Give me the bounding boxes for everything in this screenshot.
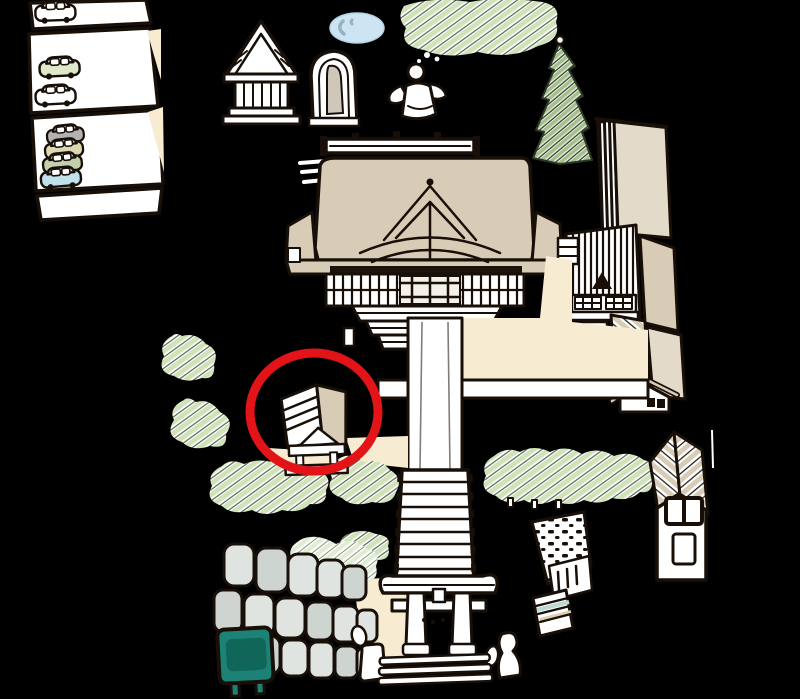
stone-stairs [396,470,474,582]
map-canvas [0,0,800,699]
small-house [650,430,713,580]
shrine-map [0,0,800,699]
approach-path [408,318,462,474]
stone-monument [309,51,359,126]
pond [330,13,384,43]
bottom-path-slats [378,654,493,685]
house-door [673,534,695,564]
